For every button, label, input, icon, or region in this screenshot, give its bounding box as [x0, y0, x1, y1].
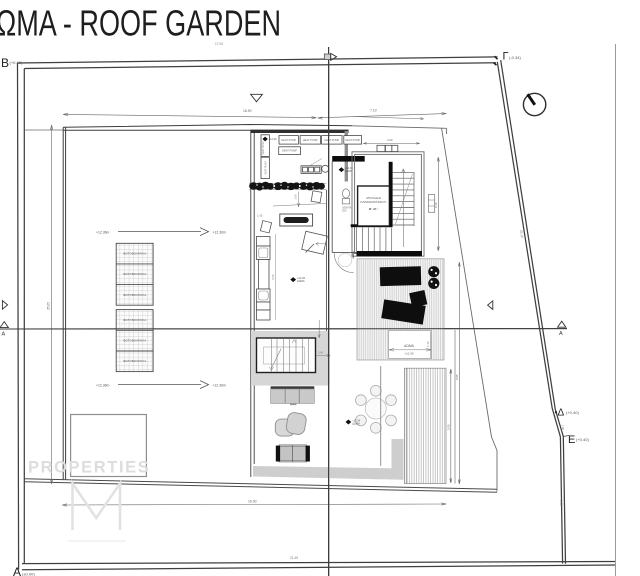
svg-text:ΦΩΤΟΒΟΛΤΑΙΚΑ: ΦΩΤΟΒΟΛΤΑΙΚΑ	[123, 293, 146, 297]
svg-text:(+0.40): (+0.40)	[566, 410, 579, 415]
svg-text:HEAT PUMP: HEAT PUMP	[324, 138, 339, 142]
svg-text:A: A	[2, 332, 6, 338]
svg-text:0.45: 0.45	[318, 352, 323, 355]
svg-text:ΖΝΖ: ΖΝΖ	[342, 210, 347, 213]
svg-text:E: E	[568, 434, 575, 446]
svg-text:5.30: 5.30	[434, 202, 438, 208]
svg-text:ΦΩΤΟΒΟΛΤΑΙΚΑ: ΦΩΤΟΒΟΛΤΑΙΚΑ	[123, 359, 146, 363]
svg-text:ΦΩΤΟΒΟΛΤΑΙΚΑ: ΦΩΤΟΒΟΛΤΑΙΚΑ	[123, 339, 146, 343]
svg-text:⌀◌⌀◌: ⌀◌⌀◌	[369, 206, 379, 211]
svg-text:HEAT PUMP: HEAT PUMP	[262, 141, 265, 155]
svg-text:Δ: Δ	[558, 408, 565, 419]
svg-text:1.05: 1.05	[257, 214, 263, 218]
svg-text:B: B	[1, 56, 9, 70]
svg-text:+12.36m: +12.36m	[96, 230, 109, 234]
svg-text:HEAT PUMP: HEAT PUMP	[345, 138, 360, 142]
svg-text:ΔΩΜΑ: ΔΩΜΑ	[345, 169, 353, 173]
svg-text:A: A	[13, 565, 21, 576]
svg-text:ΔΩΜΑ: ΔΩΜΑ	[297, 279, 305, 283]
svg-text:16.90: 16.90	[248, 499, 257, 503]
svg-text:21.45: 21.45	[290, 556, 298, 560]
svg-text:3.20: 3.20	[271, 274, 275, 280]
svg-text:+12.36m: +12.36m	[213, 230, 226, 234]
svg-text:Γ: Γ	[503, 51, 509, 63]
svg-text:(±0.00): (±0.00)	[22, 572, 35, 576]
svg-text:ΦΩΤΟΒΟΛΤΑΙΚΑ: ΦΩΤΟΒΟΛΤΑΙΚΑ	[123, 252, 146, 256]
svg-text:ΩΜΑ - ROOF GARDEN: ΩΜΑ - ROOF GARDEN	[0, 3, 281, 44]
svg-text:17.04: 17.04	[215, 42, 223, 46]
svg-text:35.05: 35.05	[47, 302, 51, 310]
svg-text:PROPERTIES: PROPERTIES	[28, 459, 150, 477]
svg-text:A: A	[559, 331, 563, 337]
svg-text:3.20: 3.20	[387, 138, 393, 142]
svg-text:9.85: 9.85	[455, 374, 459, 380]
svg-text:(-0.34): (-0.34)	[509, 55, 521, 60]
svg-text:1.10: 1.10	[426, 341, 430, 347]
svg-text:HEAT PUMP: HEAT PUMP	[281, 138, 296, 142]
svg-text:7.10: 7.10	[370, 109, 377, 113]
svg-text:+12.36m: +12.36m	[213, 383, 226, 387]
svg-text:9.33: 9.33	[559, 500, 563, 507]
svg-text:(+0.40): (+0.40)	[10, 60, 23, 65]
svg-text:+12.36: +12.36	[269, 137, 278, 141]
svg-text:5.00: 5.00	[447, 424, 451, 430]
svg-text:ΔΩΜΑ: ΔΩΜΑ	[404, 344, 415, 348]
svg-text:ΚΛΙΜΑΚΟΣΤΑΣΙΟΥ: ΚΛΙΜΑΚΟΣΤΑΣΙΟΥ	[361, 200, 387, 204]
svg-text:ΔΩΜΑ: ΔΩΜΑ	[352, 422, 360, 426]
svg-text:HEAT PUMP: HEAT PUMP	[282, 149, 297, 153]
svg-text:1.00: 1.00	[294, 194, 298, 200]
svg-text:+12.36: +12.36	[404, 352, 414, 356]
svg-text:ΦΩΤΟΒΟΛΤΑΙΚΑ: ΦΩΤΟΒΟΛΤΑΙΚΑ	[123, 318, 146, 322]
svg-text:HEAT PUMP: HEAT PUMP	[265, 161, 268, 175]
svg-text:HEAT PUMP: HEAT PUMP	[303, 138, 318, 142]
svg-text:+12.36m: +12.36m	[96, 383, 109, 387]
svg-text:(+0.40): (+0.40)	[576, 437, 589, 442]
svg-text:16.90: 16.90	[243, 109, 252, 113]
svg-text:ΦΩΤΟΒΟΛΤΑΙΚΑ: ΦΩΤΟΒΟΛΤΑΙΚΑ	[123, 272, 146, 276]
